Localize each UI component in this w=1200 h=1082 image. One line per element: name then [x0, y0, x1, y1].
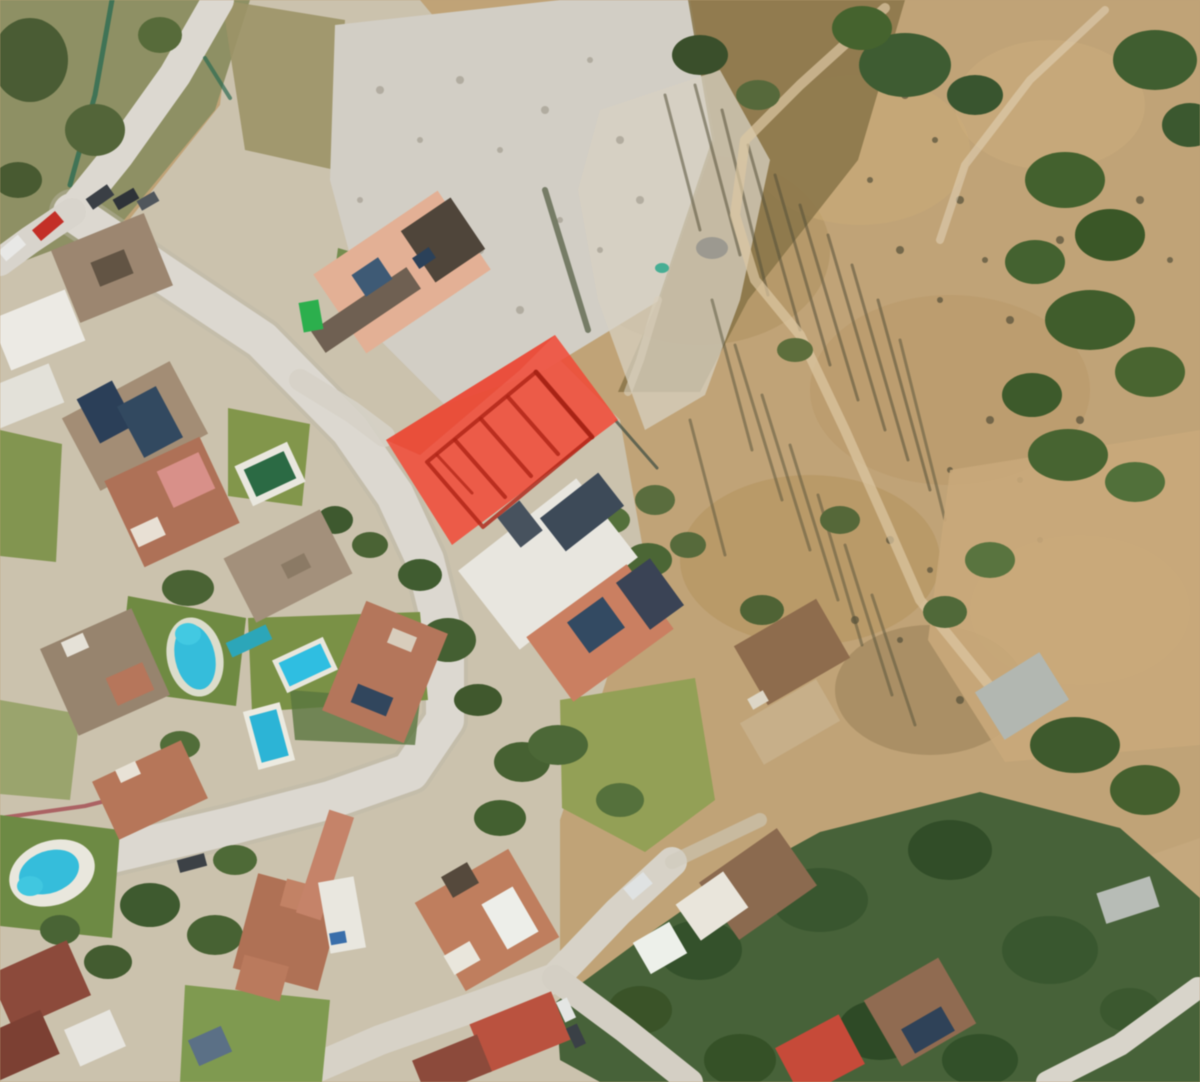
swimming-pool [17, 876, 43, 896]
scrub-speckles [1006, 316, 1014, 324]
tree [454, 684, 502, 716]
tree [635, 485, 675, 515]
tree [120, 883, 180, 927]
tree [474, 800, 526, 836]
lawn [0, 700, 80, 800]
scrub-speckles [1076, 416, 1084, 424]
scrub-speckles [986, 416, 994, 424]
tree [947, 75, 1003, 115]
tree [923, 596, 967, 628]
gravel-speckles [456, 76, 464, 84]
scrub-speckles [937, 297, 943, 303]
tree [1025, 152, 1105, 208]
forest-canopy [908, 820, 992, 880]
bush [820, 506, 860, 534]
gravel-speckles [636, 196, 644, 204]
tree [352, 532, 388, 558]
tree [832, 6, 892, 50]
scrub-speckles [1167, 257, 1173, 263]
scrub-speckles [1056, 236, 1064, 244]
green-plot [180, 985, 330, 1082]
tree [187, 915, 243, 955]
gravel-speckles [541, 106, 549, 114]
tree [528, 725, 588, 765]
bush [740, 595, 784, 625]
tree [1005, 240, 1065, 284]
satellite-imagery [0, 0, 1200, 1082]
tree [398, 559, 442, 591]
tree [1028, 429, 1108, 481]
gravel-speckles [497, 147, 503, 153]
scrub-speckles [896, 246, 904, 254]
tree [1030, 717, 1120, 773]
tree [1113, 30, 1197, 90]
satellite-map [0, 0, 1200, 1082]
scrub-speckles [982, 257, 988, 263]
tree [1115, 347, 1185, 397]
gravel-speckles [597, 247, 603, 253]
scrub-speckles [851, 616, 859, 624]
gravel-speckles [616, 136, 624, 144]
lawn [0, 430, 62, 562]
gravel-speckles [587, 57, 593, 63]
tree [1045, 290, 1135, 350]
tree [138, 17, 182, 53]
tree [40, 915, 80, 945]
tree [1105, 462, 1165, 502]
tree [84, 945, 132, 979]
scrub-speckles [932, 137, 938, 143]
scrub-speckles [927, 567, 933, 573]
rock-blob [696, 237, 728, 259]
tree [1110, 765, 1180, 815]
tree [736, 80, 780, 110]
forest-canopy [1002, 916, 1098, 984]
tree [965, 542, 1015, 578]
tree [213, 845, 257, 875]
tree [672, 35, 728, 75]
tree [1075, 209, 1145, 261]
gravel-speckles [516, 306, 524, 314]
gravel-speckles [357, 197, 363, 203]
tree [1002, 373, 1062, 417]
tree [162, 570, 214, 606]
scrub-speckles [897, 637, 903, 643]
gravel-speckles [376, 86, 384, 94]
swimming-pool [175, 623, 201, 645]
scrub-speckles [956, 696, 964, 704]
scrub-speckles [1136, 196, 1144, 204]
pond-tarp [655, 263, 669, 273]
tree [596, 783, 644, 817]
scrub-speckles [867, 177, 873, 183]
gravel-speckles [417, 137, 423, 143]
tree [670, 532, 706, 558]
bush [777, 338, 813, 362]
tree [65, 104, 125, 156]
